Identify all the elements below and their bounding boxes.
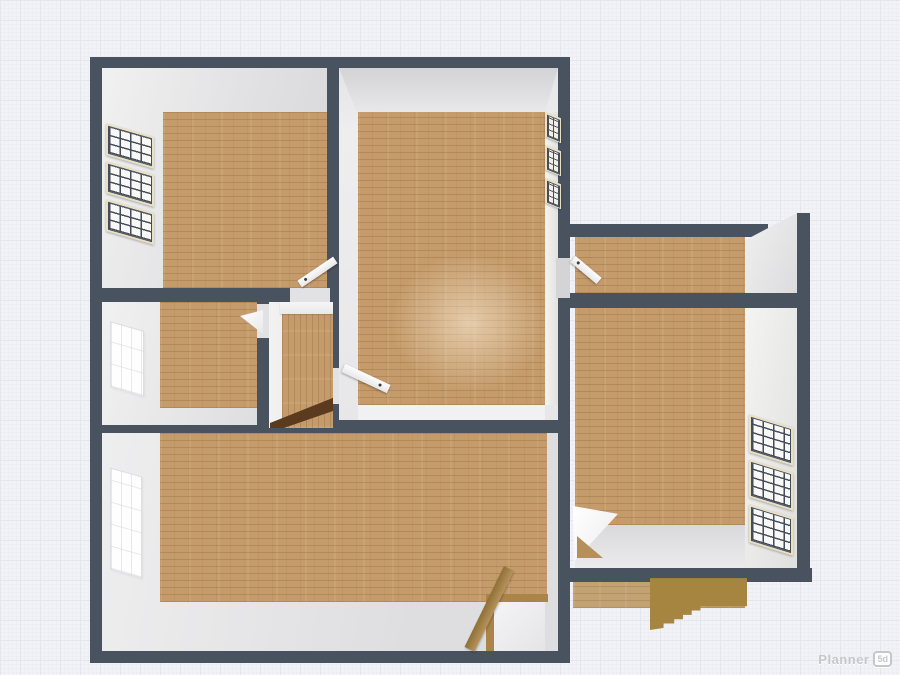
window-faint-mid-left[interactable]	[110, 321, 144, 397]
room-top-middle-ceiling-face	[339, 68, 558, 112]
planner5d-logo: Planner 5d	[818, 651, 892, 667]
window-group-top-middle-right[interactable]	[545, 112, 561, 209]
planner5d-logo-text: Planner	[818, 652, 869, 667]
window-group-top-left[interactable]	[106, 123, 154, 245]
floorplan-canvas[interactable]: Planner 5d	[0, 0, 900, 675]
window-panes	[547, 147, 560, 174]
window-panes	[547, 114, 560, 141]
window-panes	[108, 164, 152, 205]
right-wing-wall-top[interactable]	[570, 224, 768, 237]
right-wing-wall-middle[interactable]	[570, 293, 810, 308]
right-top-room-floor[interactable]	[575, 237, 745, 293]
right-wing-wall-right[interactable]	[797, 213, 810, 582]
door-opening-shared-wall[interactable]	[556, 258, 570, 298]
door-handle	[576, 261, 580, 265]
planner5d-logo-badge-icon: 5d	[873, 651, 892, 667]
hallway-closet[interactable]	[269, 302, 333, 428]
window-panes	[751, 462, 791, 508]
window-icon[interactable]	[545, 145, 561, 176]
hallway-shelf[interactable]	[280, 302, 333, 314]
right-bottom-room-floor[interactable]	[575, 308, 745, 525]
stairwell-opening[interactable]	[492, 597, 545, 651]
room-top-left-floor[interactable]	[163, 112, 327, 288]
window-icon[interactable]	[545, 112, 561, 143]
window-icon[interactable]	[106, 161, 154, 207]
window-group-right-bottom[interactable]	[749, 414, 793, 555]
door-handle	[378, 383, 382, 387]
window-faint-bottom-left[interactable]	[110, 467, 142, 578]
floor-light-highlight	[384, 248, 554, 398]
entry-stairs[interactable]	[650, 576, 747, 630]
room-top-middle-bottom-wall-face	[358, 405, 545, 420]
door-handle	[304, 277, 308, 281]
door-opening-top-left[interactable]	[290, 288, 330, 302]
window-icon[interactable]	[749, 459, 793, 510]
room-top-middle[interactable]	[339, 68, 558, 420]
room-bottom-floor[interactable]	[160, 433, 547, 602]
window-panes	[547, 180, 560, 207]
